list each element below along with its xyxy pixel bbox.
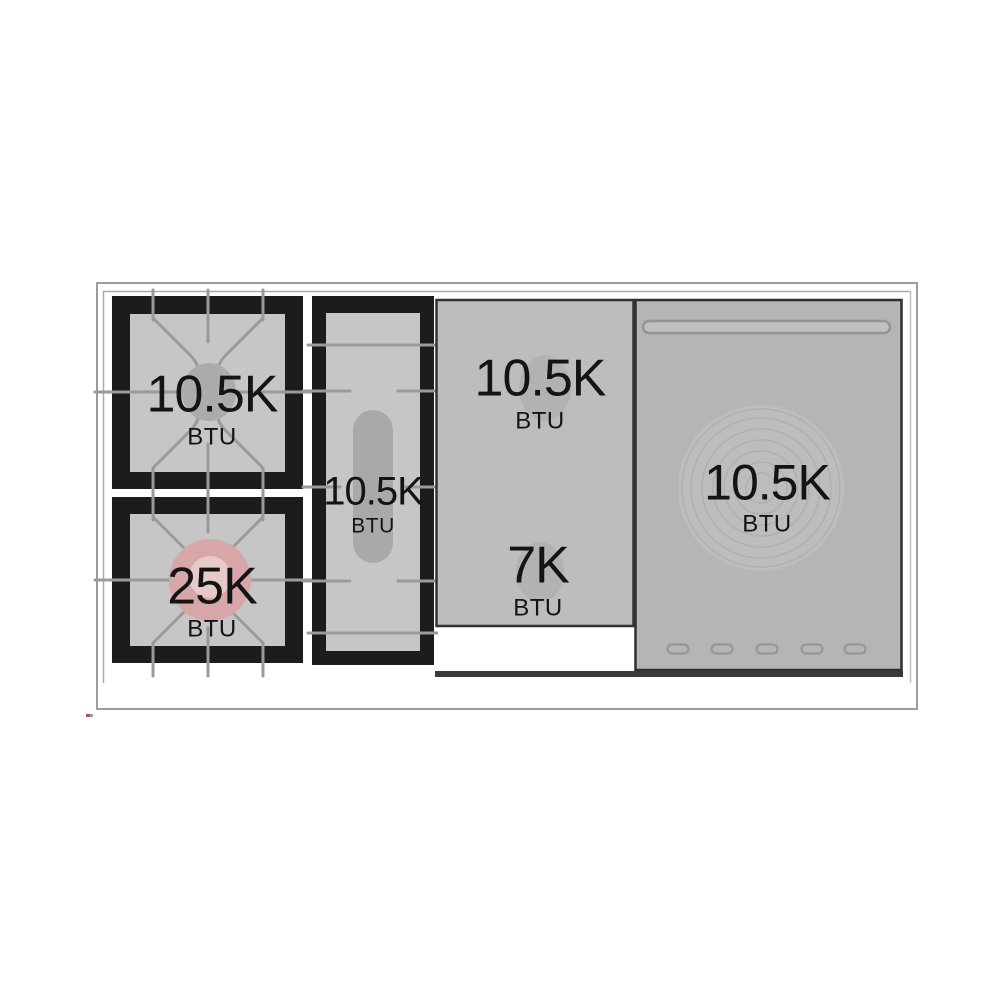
rangetop-graphics — [0, 0, 1000, 1000]
btu-value: 10.5K — [323, 472, 423, 512]
btu-unit: BTU — [704, 513, 830, 537]
burner-label-front-left: 25K BTU — [167, 561, 257, 642]
btu-unit: BTU — [507, 597, 569, 621]
indicator-oval — [845, 645, 866, 654]
btu-value: 7K — [507, 540, 569, 592]
btu-unit: BTU — [167, 618, 257, 642]
btu-unit: BTU — [323, 516, 423, 537]
btu-unit: BTU — [147, 426, 278, 450]
indicator-oval — [802, 645, 823, 654]
burner-label-front-right-zone: 7K BTU — [507, 540, 569, 621]
btu-value: 10.5K — [147, 369, 278, 421]
btu-value: 10.5K — [704, 458, 830, 508]
btu-unit: BTU — [475, 410, 606, 434]
burner-label-rear-left: 10.5K BTU — [147, 369, 278, 450]
indicator-oval — [712, 645, 733, 654]
griddle-front-cutout — [438, 628, 632, 672]
indicator-oval — [668, 645, 689, 654]
burner-label-rear-right-zone: 10.5K BTU — [475, 353, 606, 434]
indicator-oval — [757, 645, 778, 654]
vent-slot — [643, 321, 890, 333]
burner-label-french-top: 10.5K BTU — [704, 458, 830, 537]
rangetop-diagram: 10.5K BTU 25K BTU 10.5K BTU 10.5K BTU 7K… — [0, 0, 1000, 1000]
cooktop-front-edge — [435, 671, 903, 677]
pixel-artifact — [86, 714, 93, 717]
btu-value: 25K — [167, 561, 257, 613]
burner-label-center-oval: 10.5K BTU — [323, 472, 423, 537]
btu-value: 10.5K — [475, 353, 606, 405]
